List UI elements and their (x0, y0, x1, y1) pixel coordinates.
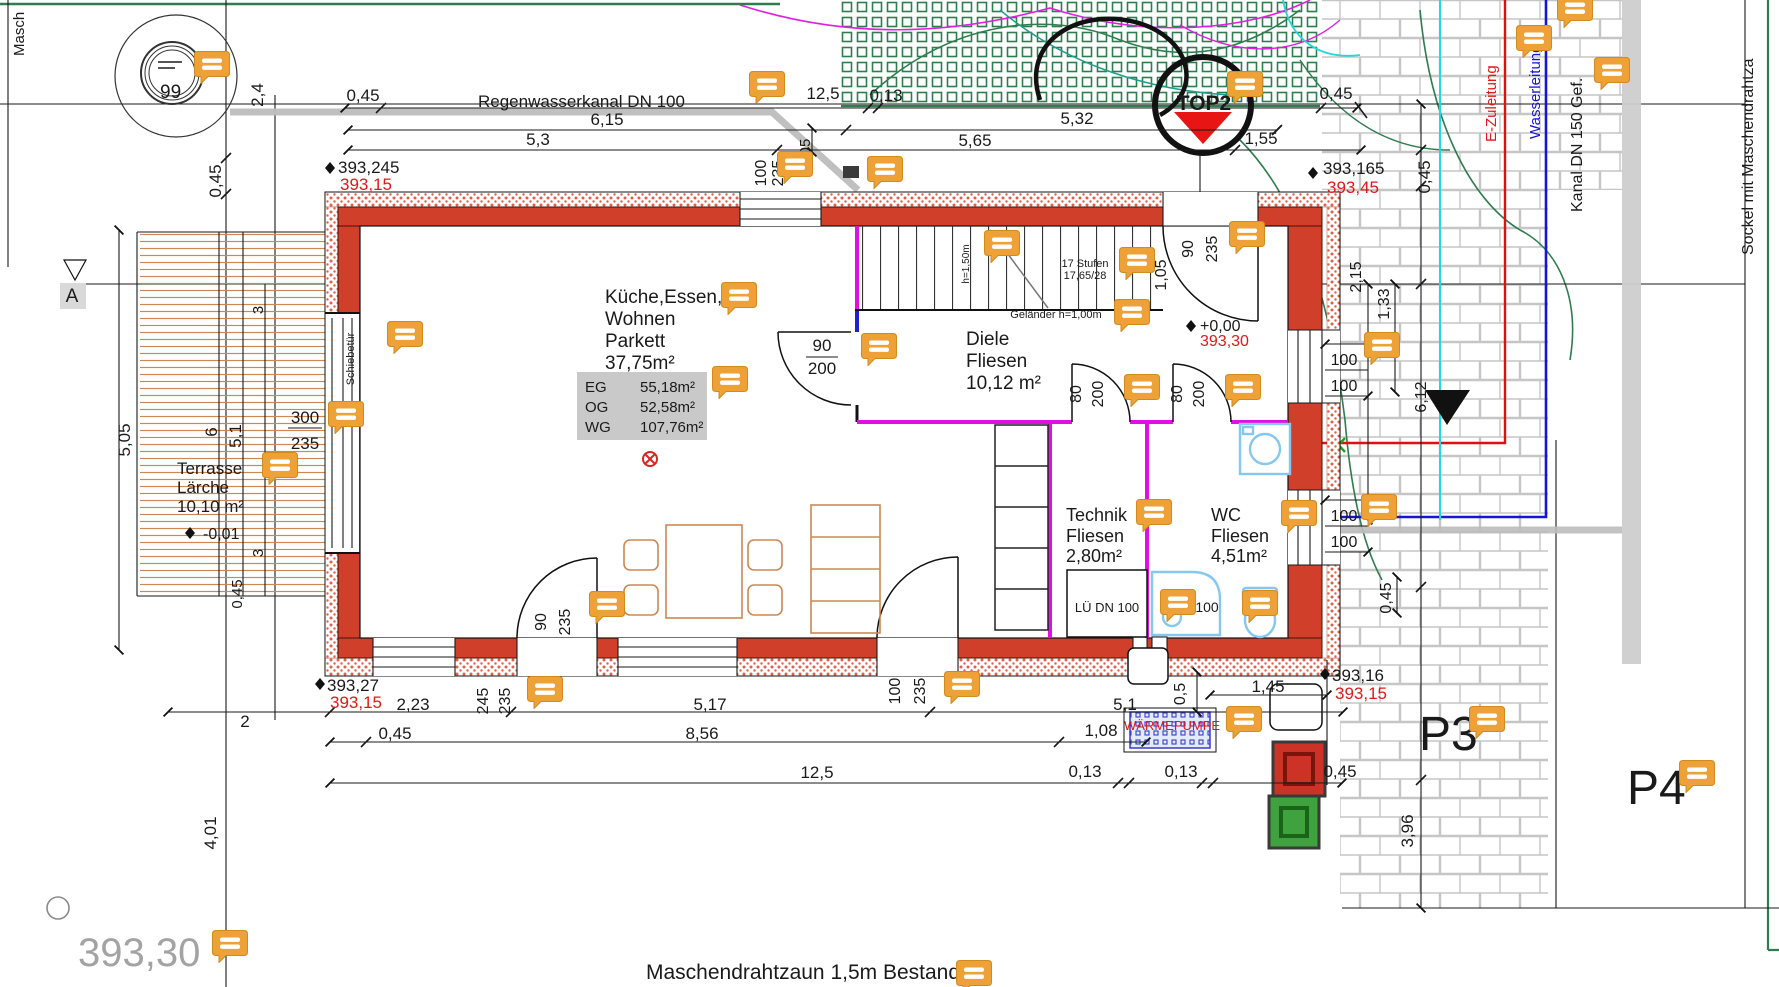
svg-text:5,3: 5,3 (526, 130, 550, 149)
shaft-green (1269, 796, 1319, 848)
svg-text:393,45: 393,45 (1327, 178, 1379, 197)
parking-p4-label: P4 (1627, 762, 1686, 815)
svg-text:0,45: 0,45 (1378, 582, 1395, 613)
svg-text:EG: EG (585, 379, 607, 396)
svg-text:0,45: 0,45 (1323, 762, 1356, 781)
svg-text:1,08: 1,08 (1084, 721, 1117, 740)
svg-text:235: 235 (912, 678, 929, 705)
window-south-2 (618, 638, 737, 676)
svg-text:17,65/28: 17,65/28 (1064, 270, 1107, 282)
svg-text:0,13: 0,13 (869, 86, 902, 105)
svg-text:235: 235 (291, 434, 319, 453)
rainwater-label: Regenwasserkanal DN 100 (478, 92, 685, 111)
svg-text:80: 80 (1169, 385, 1186, 403)
svg-text:Lärche: Lärche (177, 478, 229, 497)
svg-text:Fliesen: Fliesen (1066, 526, 1124, 546)
svg-text:235: 235 (557, 609, 574, 636)
svg-text:3: 3 (250, 306, 267, 314)
wardrobe (995, 425, 1048, 630)
section-a-label: A (66, 286, 79, 307)
svg-text:6: 6 (202, 427, 221, 436)
svg-text:100: 100 (887, 678, 904, 705)
svg-text:235: 235 (497, 688, 514, 715)
shaft-red (1273, 742, 1325, 796)
svg-text:5,65: 5,65 (958, 131, 991, 150)
svg-text:0,5: 0,5 (1172, 683, 1189, 705)
parking-p3-label: P3 (1419, 708, 1478, 761)
comment-marker[interactable] (213, 931, 248, 963)
svg-text:393,15: 393,15 (340, 175, 392, 194)
svg-text:2,4: 2,4 (248, 83, 267, 107)
svg-text:393,15: 393,15 (1335, 684, 1387, 703)
svg-text:2: 2 (240, 712, 249, 731)
svg-text:Fliesen: Fliesen (966, 351, 1027, 372)
comment-marker[interactable] (1227, 707, 1262, 739)
comment-marker[interactable] (945, 672, 980, 704)
svg-text:10,12 m²: 10,12 m² (966, 373, 1041, 394)
kanal-pipe (1622, 0, 1641, 664)
svg-text:52,58m²: 52,58m² (640, 399, 695, 416)
svg-text:235: 235 (1204, 236, 1221, 263)
fence-label-left: Masch (11, 12, 28, 56)
svg-text:8,56: 8,56 (685, 724, 718, 743)
svg-text:200: 200 (1090, 381, 1107, 408)
svg-text:12,5: 12,5 (800, 763, 833, 782)
svg-text:5,05: 5,05 (115, 423, 134, 456)
svg-text:2,23: 2,23 (396, 695, 429, 714)
level-br: 393,16 (1332, 666, 1384, 685)
svg-text:100: 100 (753, 160, 770, 187)
svg-text:200: 200 (808, 359, 836, 378)
svg-text:0,45: 0,45 (1319, 84, 1352, 103)
svg-text:Wohnen: Wohnen (605, 309, 675, 330)
outdoor-unit-1 (1128, 648, 1168, 684)
svg-text:100: 100 (1331, 508, 1358, 525)
svg-text:100: 100 (1195, 599, 1219, 615)
svg-text:h=1,50m: h=1,50m (961, 244, 972, 283)
svg-text:3: 3 (250, 549, 267, 557)
stairs-label: 17 Stufen (1061, 258, 1108, 270)
room-kueche: Küche,Essen, (605, 287, 722, 308)
window-north (740, 192, 821, 226)
svg-text:80: 80 (1068, 385, 1085, 403)
pipe-tag (843, 166, 859, 178)
comment-marker[interactable] (195, 52, 230, 84)
svg-text:OG: OG (585, 399, 608, 416)
svg-text:393,15: 393,15 (330, 693, 382, 712)
svg-text:100: 100 (1331, 378, 1358, 395)
fence-label-bottom: Maschendrahtzaun 1,5m Bestand (646, 961, 960, 984)
svg-text:5,1: 5,1 (226, 424, 245, 448)
e-zuleitung-label: E-Zuleitung (1483, 65, 1500, 142)
survey-point (47, 897, 69, 919)
schiebetuer-label: Schiebetür (345, 332, 357, 385)
svg-text:10,10 m²: 10,10 m² (177, 497, 244, 516)
svg-text:37,75m²: 37,75m² (605, 353, 675, 374)
svg-text:0,45: 0,45 (1415, 160, 1434, 193)
level-tr: 393,165 (1323, 159, 1384, 178)
svg-text:3,96: 3,96 (1398, 814, 1417, 847)
svg-text:0,45: 0,45 (229, 579, 246, 608)
svg-text:5,17: 5,17 (693, 695, 726, 714)
svg-text:2,80m²: 2,80m² (1066, 546, 1122, 566)
svg-text:Parkett: Parkett (605, 331, 666, 352)
plan-drawing: Masch 99 Regenwasserkanal DN 100 0,45 6,… (0, 0, 1779, 987)
svg-text:Fliesen: Fliesen (1211, 526, 1269, 546)
svg-text:0,13: 0,13 (1164, 762, 1197, 781)
svg-text:0,45: 0,45 (346, 86, 379, 105)
svg-text:300: 300 (291, 408, 319, 427)
svg-text:12,5: 12,5 (806, 84, 839, 103)
washing-machine (1240, 424, 1290, 474)
svg-text:0,45: 0,45 (378, 724, 411, 743)
room-technik: Technik (1066, 505, 1128, 525)
svg-text:1,55: 1,55 (1244, 129, 1277, 148)
comment-marker[interactable] (868, 157, 903, 189)
svg-text:55,18m²: 55,18m² (640, 379, 695, 396)
svg-text:WG: WG (585, 419, 611, 436)
sockel-label: Sockel mit Maschendrahtza (1740, 58, 1757, 255)
window-south-1 (373, 638, 455, 676)
kanal-label: Kanal DN 150 Gef. (1569, 78, 1586, 212)
room-terrasse: Terrasse (177, 459, 242, 478)
room-wc: WC (1211, 505, 1241, 525)
svg-text:107,76m²: 107,76m² (640, 419, 703, 436)
comment-marker[interactable] (957, 961, 992, 987)
wasserleitung-label: Wasserleitung (1527, 45, 1544, 139)
ground-level-label: 393,30 (78, 931, 200, 975)
tree-number: 99 (160, 82, 181, 103)
svg-text:0,45: 0,45 (206, 164, 225, 197)
svg-text:393,30: 393,30 (1200, 333, 1249, 350)
svg-text:4,51m²: 4,51m² (1211, 546, 1267, 566)
svg-text:0,13: 0,13 (1068, 762, 1101, 781)
svg-text:Geländer h=1,00m: Geländer h=1,00m (1010, 309, 1101, 321)
comment-marker[interactable] (750, 72, 785, 104)
waermepumpe-label: WÄRMEPUMPE (1124, 718, 1220, 733)
svg-text:100: 100 (1331, 352, 1358, 369)
svg-text:90: 90 (813, 336, 832, 355)
svg-text:1,45: 1,45 (1251, 677, 1284, 696)
svg-text:245: 245 (475, 688, 492, 715)
svg-text:200: 200 (1191, 381, 1208, 408)
comment-marker[interactable] (528, 677, 563, 709)
svg-text:90: 90 (533, 613, 550, 631)
svg-text:2,15: 2,15 (1348, 261, 1365, 292)
top2-label: TOP2 (1177, 92, 1231, 115)
room-diele: Diele (966, 329, 1009, 350)
svg-text:1,33: 1,33 (1376, 288, 1393, 319)
svg-text:4,01: 4,01 (201, 816, 220, 849)
svg-text:5,1: 5,1 (1113, 695, 1137, 714)
svg-text:5,32: 5,32 (1060, 109, 1093, 128)
svg-text:90: 90 (1180, 240, 1197, 258)
lueftung-label: LÜ DN 100 (1075, 600, 1139, 615)
svg-text:-0,01: -0,01 (203, 526, 240, 543)
svg-text:1,05: 1,05 (1153, 259, 1170, 290)
svg-text:100: 100 (1331, 534, 1358, 551)
svg-text:6,12: 6,12 (1413, 381, 1430, 412)
floor-plan-canvas: Masch 99 Regenwasserkanal DN 100 0,45 6,… (0, 0, 1779, 987)
svg-text:6,15: 6,15 (590, 110, 623, 129)
